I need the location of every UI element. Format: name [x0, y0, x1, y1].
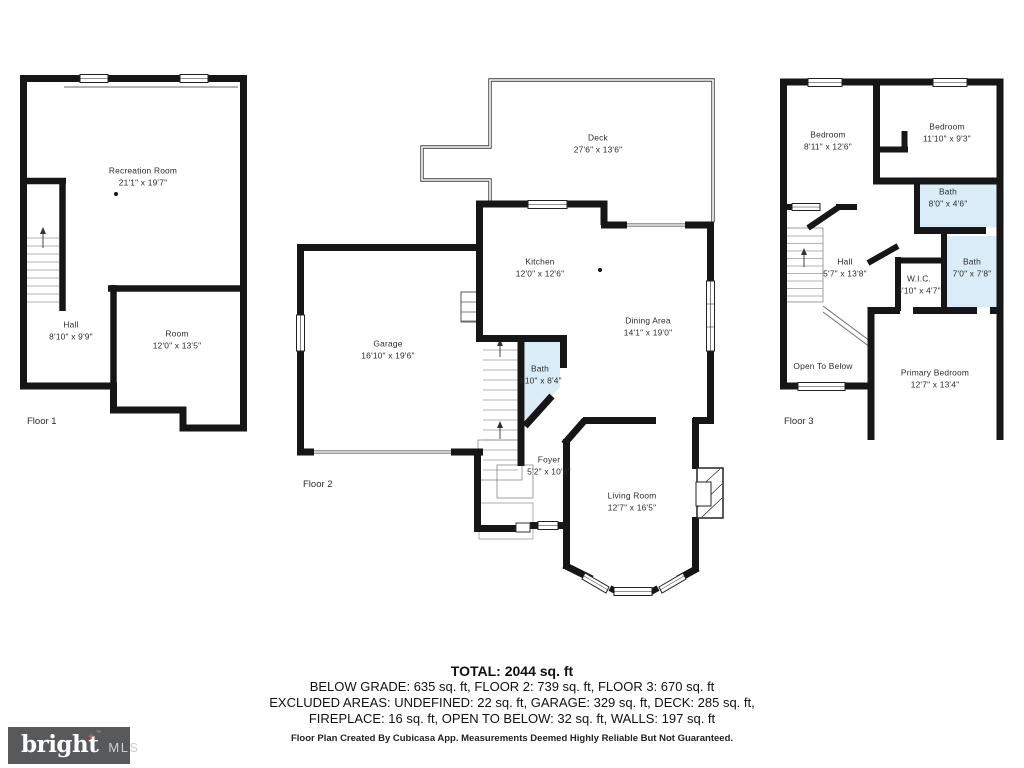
floor3-railing	[823, 306, 870, 347]
room-label-open-to-below: Open To Below	[793, 362, 852, 370]
logo-mls-text: MLS	[108, 740, 139, 755]
room-label-hall-f1: Hall 8'10" x 9'9"	[49, 321, 93, 342]
floor2-pantry-box	[461, 292, 477, 322]
floor-1-drawing	[0, 70, 270, 440]
area-summary: TOTAL: 2044 sq. ft BELOW GRADE: 635 sq. …	[0, 663, 1024, 744]
room-label-bedroom-right: Bedroom 11'10" x 9'3"	[923, 123, 971, 144]
floor-3-drawing	[770, 70, 1020, 440]
room-label-deck: Deck 27'6" x 13'6"	[574, 134, 623, 155]
room-label-hall-f3: Hall 5'7" x 13'8"	[823, 258, 867, 279]
room-label-bath-primary: Bath 7'0" x 7'8"	[953, 258, 992, 279]
floor-3-caption: Floor 3	[784, 416, 814, 427]
floor1-outer-walls	[24, 79, 244, 429]
room-label-bath-f2: Bath 3'10" x 8'4"	[518, 365, 562, 386]
summary-line-floors: BELOW GRADE: 635 sq. ft, FLOOR 2: 739 sq…	[0, 679, 1024, 695]
floor3-stairs	[786, 228, 823, 302]
floor-3-plan: Bedroom 8'11" x 12'6" Bedroom 11'10" x 9…	[770, 70, 1020, 440]
bright-mls-logo: bright + ™ MLS	[8, 727, 130, 764]
room-label-primary-bedroom: Primary Bedroom 12'7" x 13'4"	[901, 369, 969, 390]
room-label-bedroom-left: Bedroom 8'11" x 12'6"	[804, 131, 852, 152]
fireplace	[696, 468, 723, 518]
room-label-dining-area: Dining Area 14'1" x 19'0"	[624, 317, 673, 338]
logo-plus-icon: +	[88, 731, 94, 743]
disclaimer-text: Floor Plan Created By Cubicasa App. Meas…	[0, 733, 1024, 744]
logo-brand-text: bright	[21, 727, 98, 763]
room-label-bath-upper: Bath 8'0" x 4'6"	[929, 188, 968, 209]
room-label-garage: Garage 16'10" x 19'6"	[361, 340, 414, 361]
floor1-fixture-dot	[114, 192, 118, 196]
floor2-windows	[297, 201, 715, 596]
logo-trademark: ™	[96, 730, 101, 736]
floor-plan-page: Recreation Room 21'1" x 19'7" Hall 8'10"…	[0, 0, 1024, 768]
room-label-foyer: Foyer 5'2" x 10'8"	[527, 456, 571, 477]
summary-line-excluded: EXCLUDED AREAS: UNDEFINED: 22 sq. ft, GA…	[0, 695, 1024, 711]
floor2-fixture-dot	[598, 268, 602, 272]
room-label-wic: W.I.C. 3'10" x 4'7"	[897, 275, 941, 296]
room-label-recreation-room: Recreation Room 21'1" x 19'7"	[109, 167, 177, 188]
floor2-walls	[297, 201, 714, 572]
room-label-living-room: Living Room 12'7" x 16'5"	[608, 492, 657, 513]
front-door	[516, 523, 530, 532]
room-label-room-f1: Room 12'0" x 13'5"	[153, 330, 202, 351]
summary-line-misc: FIREPLACE: 16 sq. ft, OPEN TO BELOW: 32 …	[0, 711, 1024, 727]
floor-1-plan: Recreation Room 21'1" x 19'7" Hall 8'10"…	[0, 70, 270, 440]
floor-1-caption: Floor 1	[27, 416, 57, 427]
floor2-stair-arrows	[497, 339, 503, 439]
floor2-stair-treads	[483, 340, 518, 470]
floor-2-plan: Deck 27'6" x 13'6" Kitchen 12'0" x 12'6"…	[280, 55, 740, 610]
floor-2-caption: Floor 2	[303, 479, 333, 490]
total-area: TOTAL: 2044 sq. ft	[0, 663, 1024, 679]
room-label-kitchen: Kitchen 12'0" x 12'6"	[516, 258, 565, 279]
